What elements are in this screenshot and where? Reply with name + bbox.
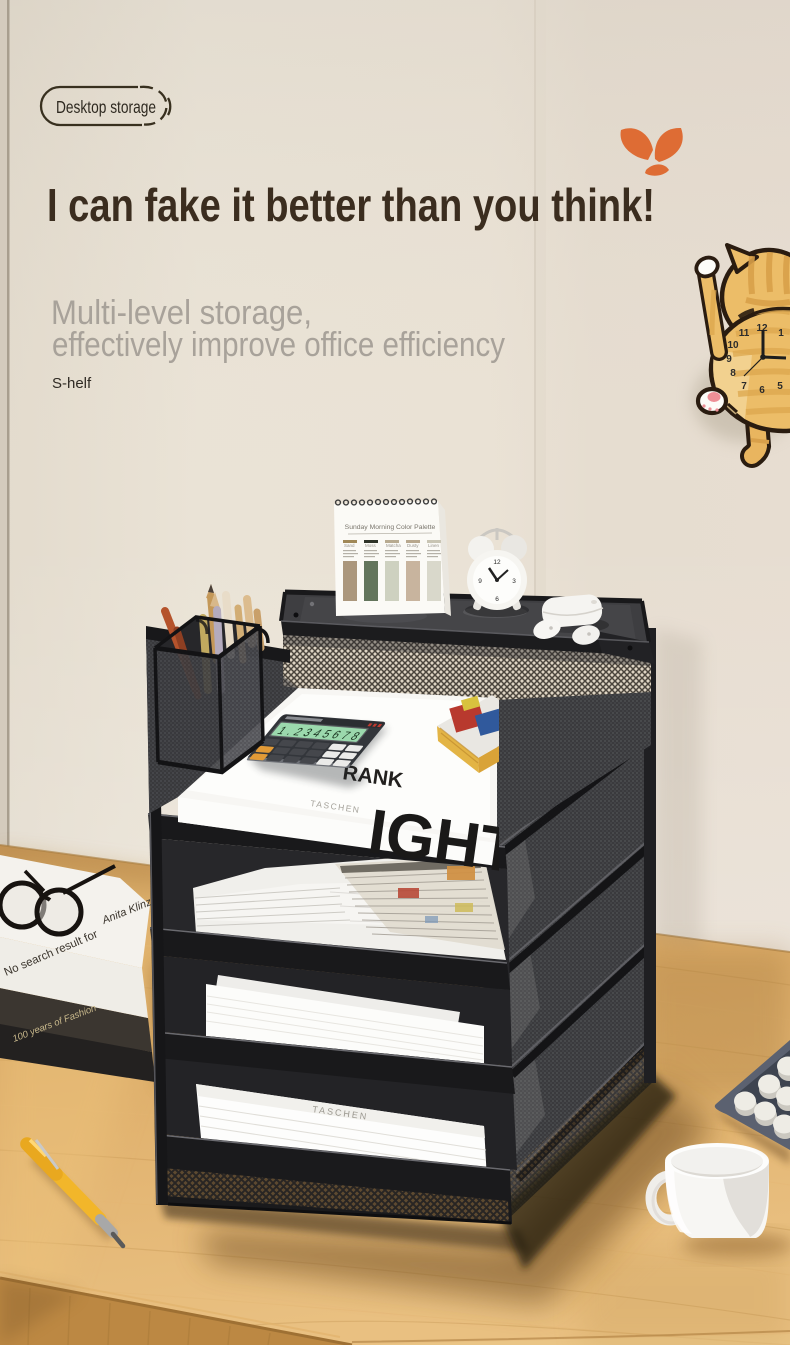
- svg-text:6: 6: [495, 596, 499, 603]
- svg-text:3: 3: [512, 578, 516, 585]
- svg-text:9: 9: [478, 578, 482, 585]
- svg-text:effectively improve office eff: effectively improve office efficiency: [52, 326, 505, 364]
- svg-text:10: 10: [727, 340, 739, 351]
- svg-text:12: 12: [493, 559, 501, 566]
- svg-text:Matcha: Matcha: [386, 543, 401, 548]
- svg-text:Linen: Linen: [428, 543, 440, 548]
- svg-text:1: 1: [778, 328, 784, 339]
- svg-text:I can fake it better than you: I can fake it better than you think!: [47, 179, 655, 231]
- svg-text:6: 6: [759, 385, 765, 396]
- svg-text:Sand: Sand: [344, 543, 355, 548]
- svg-text:8: 8: [730, 368, 736, 379]
- svg-text:5: 5: [777, 381, 783, 392]
- svg-text:7: 7: [741, 381, 747, 392]
- svg-text:Desktop storage: Desktop storage: [56, 97, 156, 117]
- svg-text:Dusty: Dusty: [407, 543, 419, 548]
- svg-text:11: 11: [739, 328, 750, 339]
- svg-text:Moss: Moss: [365, 543, 377, 548]
- svg-text:9: 9: [726, 354, 732, 365]
- svg-text:Sunday Morning Color Palette: Sunday Morning Color Palette: [345, 524, 436, 531]
- svg-text:S-helf: S-helf: [52, 375, 92, 392]
